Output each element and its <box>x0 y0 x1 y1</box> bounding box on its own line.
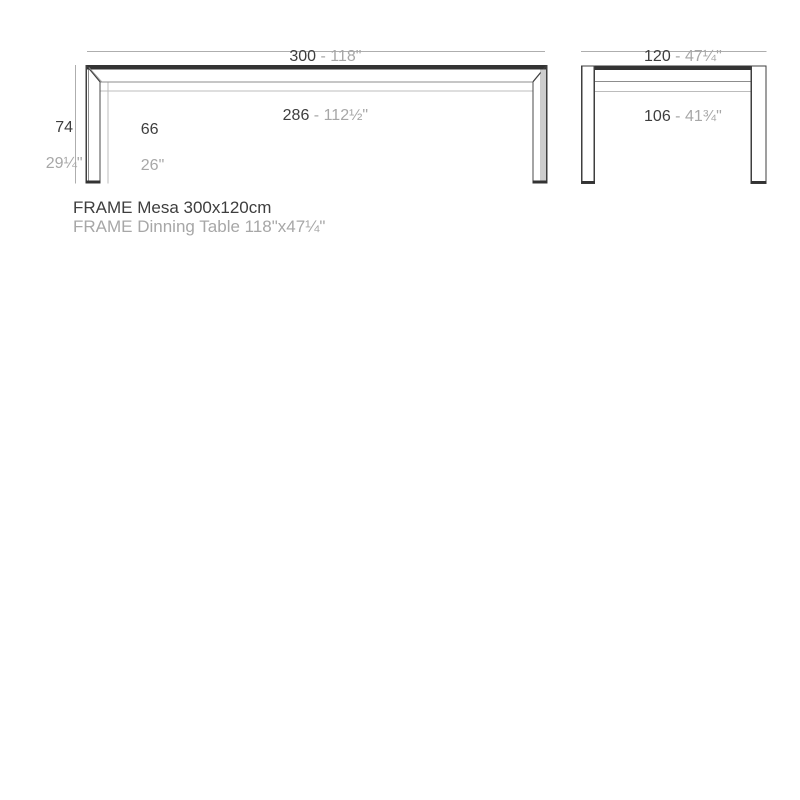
front-width-inches: - 118" <box>316 48 361 65</box>
front-inner-height-cm: 66 <box>141 121 159 138</box>
side-width-cm: 120 <box>644 48 671 65</box>
side-width-inches: - 47¼" <box>671 48 722 65</box>
front-inner-width-inches: - 112½" <box>309 107 368 124</box>
front-height-dimension-label: 74 29¼" <box>28 101 73 191</box>
front-height-inches: 29¼" <box>46 155 83 172</box>
front-inner-height-inches: 26" <box>141 157 164 174</box>
side-inner-width-dimension-label: 106 - 41¾" <box>582 93 766 141</box>
front-height-cm: 74 <box>55 119 73 136</box>
front-width-dimension-label: 300 - 118" <box>88 33 545 81</box>
front-left-leg-foot <box>86 181 101 184</box>
side-inner-width-cm: 106 <box>644 108 671 125</box>
side-inner-width-inches: - 41¾" <box>671 108 722 125</box>
product-name-primary: FRAME Mesa 300x120cm <box>73 198 271 217</box>
product-name-secondary: FRAME Dinning Table 118"x47¼" <box>73 217 325 236</box>
side-right-leg-foot <box>751 181 767 184</box>
front-right-leg-foot <box>532 181 547 184</box>
side-width-dimension-label: 120 - 47¼" <box>582 33 766 81</box>
front-inner-height-dimension-label: 66 26" <box>123 103 183 193</box>
side-left-leg-foot <box>581 181 595 184</box>
front-width-cm: 300 <box>289 48 316 65</box>
technical-drawing-page: 300 - 118" 286 - 112½" 74 29¼" 66 26" 12… <box>0 0 800 800</box>
front-inner-width-cm: 286 <box>283 107 310 124</box>
